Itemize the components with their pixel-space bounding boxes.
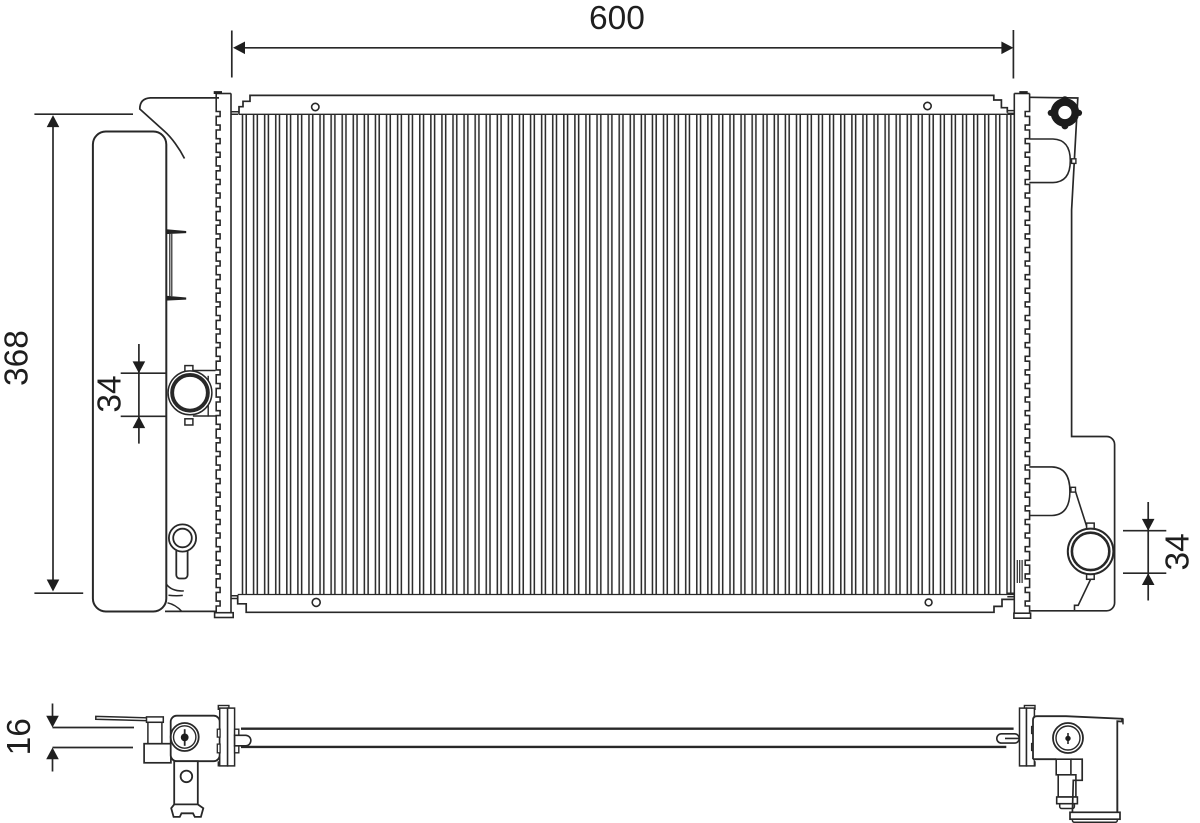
svg-text:34: 34	[1160, 533, 1197, 570]
svg-text:34: 34	[91, 375, 128, 412]
svg-text:16: 16	[1, 718, 38, 755]
svg-text:368: 368	[0, 330, 36, 386]
svg-text:600: 600	[589, 0, 645, 37]
